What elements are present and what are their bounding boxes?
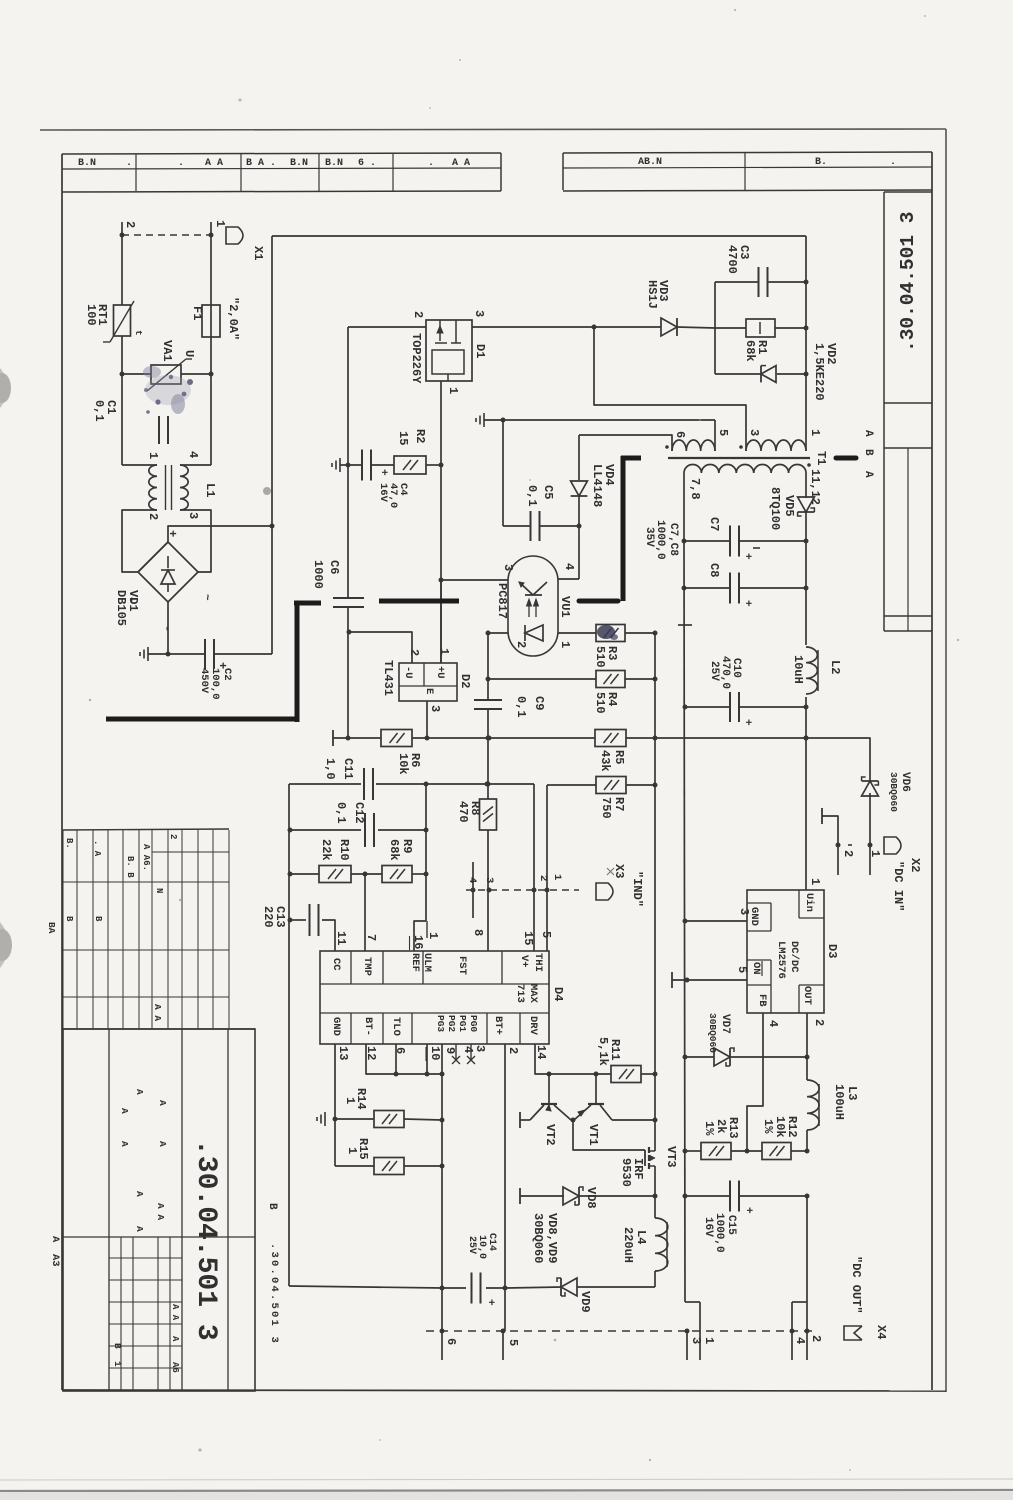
svg-text:1: 1 xyxy=(426,932,440,939)
svg-text:1000: 1000 xyxy=(311,560,325,589)
svg-text:100: 100 xyxy=(84,304,98,326)
svg-text:0,1: 0,1 xyxy=(92,400,106,422)
svg-text:16V: 16V xyxy=(702,1217,714,1237)
svg-text:.: . xyxy=(890,157,896,168)
svg-text:A: A xyxy=(134,1226,145,1232)
svg-text:A: A xyxy=(157,1141,168,1147)
svg-text:43k: 43k xyxy=(598,750,612,772)
svg-text:25V: 25V xyxy=(708,661,720,681)
svg-text:A: A xyxy=(119,1141,130,1147)
svg-text:AB.N: AB.N xyxy=(638,157,662,168)
svg-text:A A6.: A A6. xyxy=(141,844,151,871)
svg-text:A: A xyxy=(49,1236,61,1243)
svg-text:C11: C11 xyxy=(341,758,355,780)
svg-text:.: . xyxy=(126,158,132,169)
svg-text:1: 1 xyxy=(345,1147,359,1154)
svg-text:PG2: PG2 xyxy=(446,1015,457,1032)
svg-text:DRV: DRV xyxy=(527,1016,539,1036)
svg-text:3: 3 xyxy=(501,564,515,571)
svg-text:R5: R5 xyxy=(612,750,626,764)
svg-text:100uH: 100uH xyxy=(832,1084,846,1120)
svg-text:Uin: Uin xyxy=(803,893,815,912)
svg-text:DB105: DB105 xyxy=(114,590,128,626)
svg-text:N: N xyxy=(154,888,164,893)
svg-text:R10: R10 xyxy=(337,839,351,861)
svg-text:VD8,VD9: VD8,VD9 xyxy=(545,1213,559,1263)
svg-text:A: A xyxy=(134,1089,145,1095)
svg-text:X1: X1 xyxy=(251,246,265,260)
svg-text:+: + xyxy=(742,1207,754,1214)
svg-text:A: A xyxy=(862,430,874,437)
svg-text:4700: 4700 xyxy=(725,245,739,274)
svg-text:0,1: 0,1 xyxy=(514,696,528,718)
svg-text:2: 2 xyxy=(168,834,178,839)
svg-text:LL4148: LL4148 xyxy=(590,464,604,507)
svg-text:FST: FST xyxy=(456,956,468,975)
svg-text:D4: D4 xyxy=(551,987,565,1001)
svg-text:9530: 9530 xyxy=(619,1158,633,1187)
svg-text:2: 2 xyxy=(812,1019,826,1026)
svg-text:1: 1 xyxy=(868,850,882,857)
svg-text:B: B xyxy=(64,916,74,922)
svg-text:30BQ060: 30BQ060 xyxy=(531,1213,545,1263)
svg-text:VD7: VD7 xyxy=(719,1014,731,1034)
svg-text:+: + xyxy=(165,530,179,537)
svg-text:450V: 450V xyxy=(198,668,210,694)
svg-text:VU1: VU1 xyxy=(558,596,572,618)
svg-text:R7: R7 xyxy=(612,797,626,811)
svg-text:713: 713 xyxy=(514,984,526,1003)
svg-text:470: 470 xyxy=(456,801,470,823)
svg-text:8TQ100: 8TQ100 xyxy=(768,487,782,530)
svg-text:. A: . A xyxy=(92,840,102,857)
svg-text:HS1J: HS1J xyxy=(645,280,659,309)
svg-text:2: 2 xyxy=(407,649,421,656)
svg-text:1: 1 xyxy=(343,1097,357,1104)
svg-text:B A .: B A . xyxy=(246,158,276,169)
svg-text:6: 6 xyxy=(444,1338,458,1345)
svg-text:FB: FB xyxy=(756,994,768,1007)
svg-text:VT1: VT1 xyxy=(586,1124,600,1146)
svg-text:"DC OUT": "DC OUT" xyxy=(849,1256,863,1314)
svg-text:C12: C12 xyxy=(352,802,366,824)
svg-text:220: 220 xyxy=(261,906,275,928)
svg-text:2: 2 xyxy=(146,513,160,520)
svg-text:.30.04.501 3: .30.04.501 3 xyxy=(897,212,919,352)
svg-text:B: B xyxy=(266,1203,278,1210)
svg-text:25V: 25V xyxy=(466,1236,477,1254)
svg-text:+: + xyxy=(377,469,389,476)
svg-text:"2,0A": "2,0A" xyxy=(226,297,240,340)
svg-text:13: 13 xyxy=(336,1046,350,1060)
svg-text:MAX: MAX xyxy=(527,984,539,1004)
svg-text:+: + xyxy=(741,719,753,726)
svg-text:C15: C15 xyxy=(725,1215,737,1235)
svg-text:L2: L2 xyxy=(828,660,842,674)
svg-text:6 .: 6 . xyxy=(358,158,376,169)
svg-text:2: 2 xyxy=(809,1335,823,1342)
svg-text:TOP226Y: TOP226Y xyxy=(409,333,423,384)
svg-text:10: 10 xyxy=(428,1046,442,1060)
svg-text:ULM: ULM xyxy=(421,953,433,972)
svg-text:7,8: 7,8 xyxy=(688,478,702,500)
svg-text:35V: 35V xyxy=(643,527,655,547)
svg-text:~: ~ xyxy=(200,594,212,601)
svg-text:OUT: OUT xyxy=(801,986,813,1005)
svg-text:30BQ060: 30BQ060 xyxy=(888,772,899,812)
svg-text:5: 5 xyxy=(735,966,749,973)
svg-text:X2: X2 xyxy=(908,858,922,872)
svg-text:68k: 68k xyxy=(387,839,401,861)
svg-text:A A: A A xyxy=(170,1304,180,1321)
svg-text:0,1: 0,1 xyxy=(525,485,539,507)
svg-text:3: 3 xyxy=(689,1337,703,1344)
svg-text:4: 4 xyxy=(461,1046,475,1053)
svg-text:1: 1 xyxy=(146,452,160,459)
svg-text:BA: BA xyxy=(46,922,57,934)
svg-text:TLO: TLO xyxy=(390,1017,402,1036)
svg-text:R9: R9 xyxy=(400,839,414,853)
svg-text:0,1: 0,1 xyxy=(334,802,348,824)
svg-text:B.N: B.N xyxy=(78,158,96,169)
svg-text:C6: C6 xyxy=(327,560,341,574)
svg-text:+: + xyxy=(484,1299,496,1306)
svg-text:15: 15 xyxy=(521,931,535,945)
svg-text:B.N: B.N xyxy=(325,158,343,169)
svg-text:X3: X3 xyxy=(612,864,626,878)
svg-text:D2: D2 xyxy=(458,674,472,688)
svg-text:+U: +U xyxy=(434,666,446,679)
svg-text:VT2: VT2 xyxy=(543,1124,557,1146)
svg-text:VD9: VD9 xyxy=(578,1291,592,1313)
svg-text:1: 1 xyxy=(702,1337,716,1344)
svg-text:C7,C8: C7,C8 xyxy=(667,523,679,556)
svg-text:4: 4 xyxy=(186,451,200,458)
svg-text:D1: D1 xyxy=(473,344,487,358)
svg-text:R2: R2 xyxy=(413,429,427,443)
svg-text:3: 3 xyxy=(428,705,442,712)
svg-text:2: 2 xyxy=(841,850,855,857)
svg-text:2: 2 xyxy=(537,875,549,881)
svg-text:CC: CC xyxy=(330,958,342,971)
svg-text:15: 15 xyxy=(396,431,410,445)
svg-text:B: B xyxy=(862,449,874,456)
svg-text:REF: REF xyxy=(409,953,421,972)
svg-text:TL431: TL431 xyxy=(381,660,395,696)
svg-text:30BQ060: 30BQ060 xyxy=(707,1013,718,1053)
svg-text:L1: L1 xyxy=(203,483,217,497)
svg-text:"IND": "IND" xyxy=(630,871,644,907)
svg-text:-U: -U xyxy=(402,666,414,679)
svg-text:U: U xyxy=(182,350,196,357)
svg-text:2: 2 xyxy=(506,1047,520,1054)
svg-text:8: 8 xyxy=(471,929,485,936)
svg-text:B.N: B.N xyxy=(290,158,308,169)
svg-text:.30.04.501 3: .30.04.501 3 xyxy=(190,1139,221,1341)
svg-text:C9: C9 xyxy=(532,696,546,710)
svg-text:3: 3 xyxy=(472,310,486,317)
svg-text:C7: C7 xyxy=(707,517,721,531)
svg-text:BT-: BT- xyxy=(362,1017,374,1036)
svg-text:F1: F1 xyxy=(190,306,204,320)
svg-text:3: 3 xyxy=(473,1045,487,1052)
svg-text:14: 14 xyxy=(534,1045,548,1059)
svg-text:1: 1 xyxy=(437,648,451,655)
svg-text:-: - xyxy=(160,625,174,632)
svg-text:LM2576: LM2576 xyxy=(775,941,787,979)
svg-text:~: ~ xyxy=(124,597,136,604)
svg-text:C8: C8 xyxy=(707,563,721,577)
svg-text:1: 1 xyxy=(112,1361,123,1367)
svg-text:4: 4 xyxy=(466,877,478,883)
svg-text:3: 3 xyxy=(483,877,495,883)
svg-text:A: A xyxy=(157,1100,168,1106)
svg-text:A: A xyxy=(134,1191,145,1197)
svg-text:VT3: VT3 xyxy=(664,1146,678,1168)
svg-text:A A: A A xyxy=(152,1004,163,1021)
svg-text:B.: B. xyxy=(815,157,827,168)
svg-text:THI: THI xyxy=(532,953,544,972)
svg-text:1%: 1% xyxy=(761,1119,775,1134)
svg-text:3: 3 xyxy=(737,908,751,915)
svg-text:1: 1 xyxy=(213,220,227,227)
svg-text:A A: A A xyxy=(155,1203,166,1220)
svg-text:5: 5 xyxy=(506,1339,520,1346)
svg-text:1,5KE220: 1,5KE220 xyxy=(812,343,826,401)
svg-text:5,1k: 5,1k xyxy=(596,1037,610,1066)
svg-text:GND: GND xyxy=(330,1017,342,1036)
svg-text:.: . xyxy=(428,158,434,169)
svg-text:11: 11 xyxy=(334,931,348,945)
svg-text:D3: D3 xyxy=(825,944,839,958)
svg-text:10k: 10k xyxy=(396,753,410,775)
svg-text:B.: B. xyxy=(64,838,74,849)
svg-text:VD6: VD6 xyxy=(899,772,911,792)
svg-text:1: 1 xyxy=(808,878,822,885)
svg-text:2: 2 xyxy=(123,221,137,228)
svg-text:3: 3 xyxy=(747,429,761,436)
svg-text:5: 5 xyxy=(539,931,553,938)
svg-text:B: B xyxy=(93,916,103,922)
svg-text:10uH: 10uH xyxy=(791,655,805,684)
svg-text:2: 2 xyxy=(514,641,528,648)
svg-text:5: 5 xyxy=(716,429,730,436)
svg-text:1,0: 1,0 xyxy=(323,758,337,780)
svg-text:2: 2 xyxy=(411,311,425,318)
svg-text:DC/DC: DC/DC xyxy=(788,941,800,973)
svg-text:PC817: PC817 xyxy=(495,583,509,619)
svg-text:1: 1 xyxy=(551,874,563,880)
svg-text:7: 7 xyxy=(364,934,378,941)
svg-text:ON: ON xyxy=(750,962,762,975)
svg-text:220uH: 220uH xyxy=(621,1227,635,1263)
svg-text:V+: V+ xyxy=(518,955,530,968)
svg-text:16: 16 xyxy=(411,935,425,949)
svg-text:22k: 22k xyxy=(319,839,333,861)
svg-text:16V: 16V xyxy=(377,483,389,503)
svg-text:1: 1 xyxy=(446,387,460,394)
svg-text:A: A xyxy=(119,1108,130,1114)
svg-text:1%: 1% xyxy=(702,1121,716,1136)
svg-text:6: 6 xyxy=(393,1047,407,1054)
svg-text:A: A xyxy=(170,1336,180,1342)
svg-text:"DC IN": "DC IN" xyxy=(891,861,905,911)
svg-text:L4: L4 xyxy=(634,1230,648,1244)
svg-text:4: 4 xyxy=(766,1020,780,1027)
svg-text:.30.04.501 3: .30.04.501 3 xyxy=(268,1243,280,1345)
svg-text:68k: 68k xyxy=(743,340,757,362)
svg-text:C5: C5 xyxy=(541,485,555,499)
svg-text:6: 6 xyxy=(673,431,687,438)
svg-text:9: 9 xyxy=(443,1047,457,1054)
svg-text:11,12: 11,12 xyxy=(808,469,822,505)
svg-text:510: 510 xyxy=(593,692,607,714)
svg-text:C2: C2 xyxy=(221,668,233,681)
svg-text:L3: L3 xyxy=(845,1086,859,1100)
svg-text:+: + xyxy=(741,600,753,607)
svg-text:PG3: PG3 xyxy=(435,1015,446,1032)
svg-text:TMP: TMP xyxy=(361,957,373,976)
svg-text:4: 4 xyxy=(562,563,576,570)
svg-text:510: 510 xyxy=(593,646,607,668)
svg-text:750: 750 xyxy=(599,797,613,819)
svg-text:4: 4 xyxy=(793,1337,807,1344)
svg-text:A3: A3 xyxy=(49,1254,61,1267)
svg-text:1: 1 xyxy=(808,429,822,436)
svg-text:.: . xyxy=(178,158,184,169)
svg-text:X4: X4 xyxy=(874,1325,888,1339)
svg-text:1: 1 xyxy=(558,641,572,648)
svg-text:A6: A6 xyxy=(170,1362,180,1373)
svg-text:T1: T1 xyxy=(814,451,828,465)
svg-text:VD8: VD8 xyxy=(584,1187,598,1209)
svg-text:PG0: PG0 xyxy=(468,1015,479,1032)
svg-text:t: t xyxy=(133,330,144,336)
svg-text:A: A xyxy=(862,471,874,478)
svg-text:PG1: PG1 xyxy=(457,1015,468,1032)
svg-text:B. B: B. B xyxy=(125,856,135,878)
svg-text:VA1: VA1 xyxy=(160,340,174,362)
svg-text:+: + xyxy=(741,553,753,560)
svg-text:E: E xyxy=(423,688,435,694)
svg-text:VD5: VD5 xyxy=(782,495,796,517)
svg-text:BT+: BT+ xyxy=(492,1016,504,1035)
svg-text:3: 3 xyxy=(186,512,200,519)
svg-text:B: B xyxy=(112,1343,123,1349)
svg-text:A A: A A xyxy=(452,158,470,169)
svg-text:A A: A A xyxy=(205,158,223,169)
